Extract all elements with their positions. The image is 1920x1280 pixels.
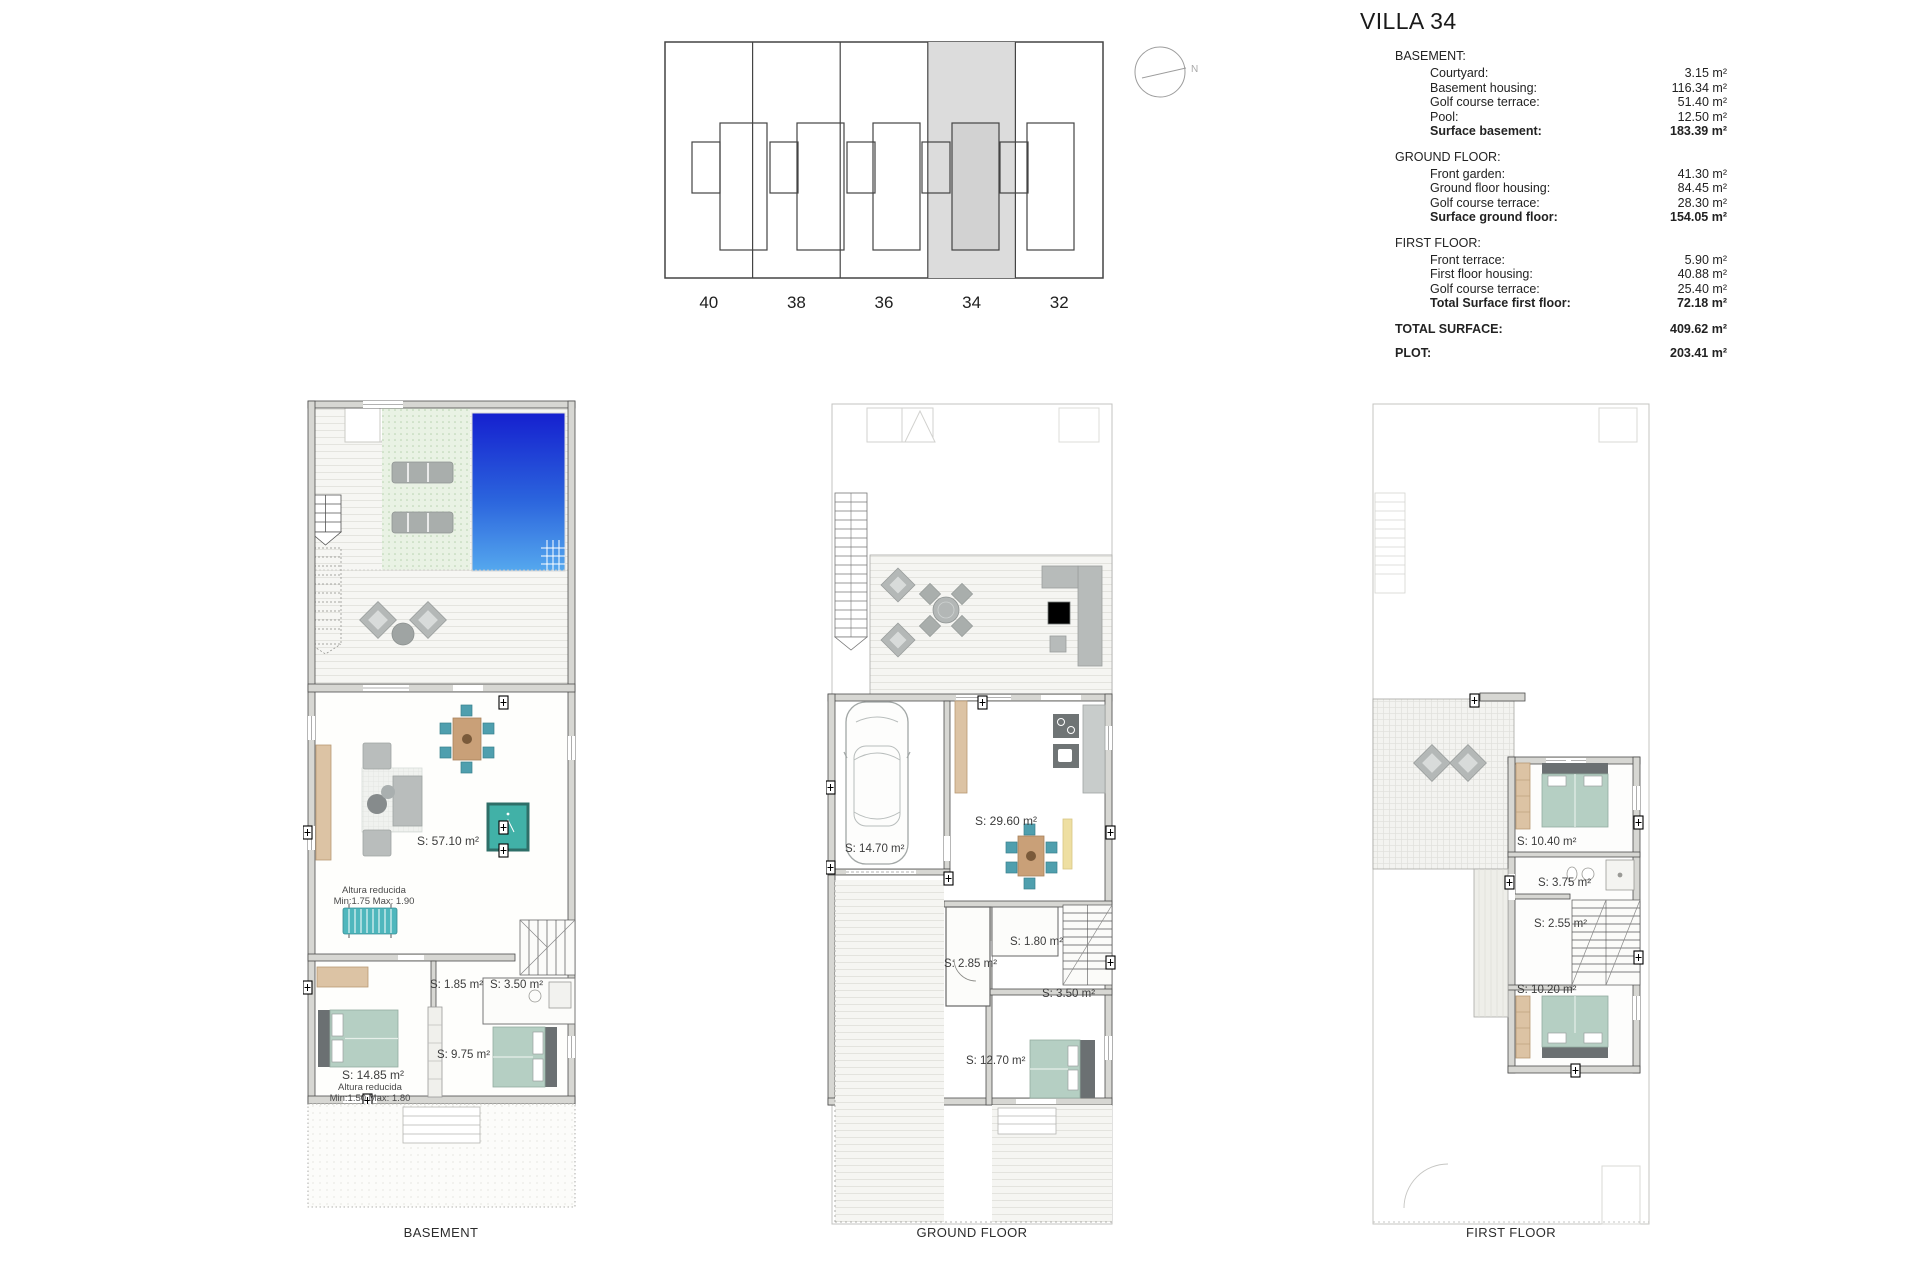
room-label-living: S: 29.60 m²	[975, 814, 1037, 828]
sun-lounger	[392, 462, 453, 483]
room-label-bath: S: 3.75 m²	[1538, 877, 1591, 889]
stairs-below-outline	[1375, 493, 1405, 593]
row-value: 28.30 m²	[1678, 196, 1727, 211]
total-label: Surface basement:	[1430, 124, 1542, 139]
unit-number: 38	[787, 293, 806, 312]
note-altura-range: Min:1.50 Max: 1.80	[330, 1093, 411, 1104]
table-summary: TOTAL SURFACE:409.62 m² PLOT:203.41 m²	[1395, 322, 1727, 361]
room-label-bedroom2: S: 10.20 m²	[1517, 984, 1577, 996]
ground-floor-plan: S: 29.60 m² S: 14.70 m² S: 1.80 m² S: 2.…	[826, 396, 1118, 1260]
table-row: Golf course terrace:51.40 m²	[1395, 95, 1727, 110]
table-section-basement: BASEMENT: Courtyard:3.15 m² Basement hou…	[1395, 49, 1727, 139]
room-label-toilet: S: 1.80 m²	[1010, 936, 1063, 948]
room-label-landing: S: 2.55 m²	[1534, 918, 1587, 930]
unit-number: 32	[1050, 293, 1069, 312]
room-label-living: S: 57.10 m²	[417, 834, 479, 848]
table-row: Front garden:41.30 m²	[1395, 167, 1727, 182]
internal-stairs	[1572, 900, 1640, 985]
total-value: 203.41 m²	[1670, 346, 1727, 361]
room-label-storage: S: 1.85 m²	[430, 979, 483, 991]
floor-caption: GROUND FLOOR	[917, 1225, 1028, 1240]
table-row: Ground floor housing:84.45 m²	[1395, 181, 1727, 196]
wall-segment	[1480, 693, 1525, 701]
row-label: Ground floor housing:	[1430, 181, 1550, 196]
total-surface-row: TOTAL SURFACE:409.62 m²	[1395, 322, 1727, 337]
unit-number: 40	[699, 293, 718, 312]
unit-numbers: 40 38 36 34 32	[699, 293, 1068, 312]
internal-stairs	[520, 920, 575, 975]
external-stairs	[835, 493, 867, 650]
room-label-bath: S: 3.50 m²	[1042, 988, 1095, 1000]
note-altura-reducida: Altura reducida	[338, 1082, 403, 1093]
basement-floor-plan: S: 57.10 m² Altura reducida Min:1.75 Max…	[303, 396, 581, 1260]
pantry-cabinet	[1063, 819, 1072, 869]
floor-caption: FIRST FLOOR	[1466, 1225, 1556, 1240]
total-value: 183.39 m²	[1670, 124, 1727, 139]
total-label: TOTAL SURFACE:	[1395, 322, 1503, 337]
table-row: Front terrace:5.90 m²	[1395, 253, 1727, 268]
site-plan: 40 38 36 34 32 N	[664, 30, 1204, 320]
row-value: 5.90 m²	[1685, 253, 1727, 268]
row-label: Front terrace:	[1430, 253, 1505, 268]
pool	[472, 413, 565, 571]
table-row: Golf course terrace:25.40 m²	[1395, 282, 1727, 297]
porch-steps	[998, 1108, 1056, 1134]
row-value: 12.50 m²	[1678, 110, 1727, 125]
car	[844, 702, 910, 864]
porch-steps	[403, 1107, 480, 1143]
vestibule	[946, 907, 990, 1006]
room-label-hall: S: 2.85 m²	[944, 958, 997, 970]
table-row: Pool:12.50 m²	[1395, 110, 1727, 125]
room-label-bedroom: S: 14.85 m²	[342, 1068, 404, 1082]
row-label: First floor housing:	[1430, 267, 1533, 282]
total-label: Total Surface first floor:	[1430, 296, 1571, 311]
table-row: Golf course terrace:28.30 m²	[1395, 196, 1727, 211]
room-label-bedroom: S: 12.70 m²	[966, 1055, 1026, 1067]
compass-north-label: N	[1191, 64, 1198, 75]
bed	[1542, 996, 1608, 1058]
balcony	[1474, 869, 1508, 1017]
room-label-bedroom1: S: 10.40 m²	[1517, 836, 1577, 848]
page-title: VILLA 34	[1360, 8, 1732, 35]
compass-icon: N	[1135, 47, 1198, 97]
bed	[318, 1010, 398, 1067]
table-total-row: Total Surface first floor:72.18 m²	[1395, 296, 1727, 311]
total-label: PLOT:	[1395, 346, 1431, 361]
row-value: 25.40 m²	[1678, 282, 1727, 297]
room-label-hall: S: 9.75 m²	[437, 1049, 490, 1061]
row-value: 51.40 m²	[1678, 95, 1727, 110]
note-altura-range: Min:1.75 Max: 1.90	[334, 896, 415, 907]
row-label: Golf course terrace:	[1430, 95, 1540, 110]
architectural-sheet: 40 38 36 34 32 N VILLA 34 BASEMENT: Cour…	[0, 0, 1920, 1280]
total-value: 72.18 m²	[1677, 296, 1727, 311]
total-value: 409.62 m²	[1670, 322, 1727, 337]
section-header: GROUND FLOOR:	[1395, 150, 1727, 164]
table-total-row: Surface basement:183.39 m²	[1395, 124, 1727, 139]
terrace-side-table	[392, 623, 414, 645]
toilet-room	[992, 907, 1058, 956]
row-value: 41.30 m²	[1678, 167, 1727, 182]
total-value: 154.05 m²	[1670, 210, 1727, 225]
row-label: Pool:	[1430, 110, 1459, 125]
note-altura-reducida: Altura reducida	[342, 885, 407, 896]
hob	[1053, 714, 1079, 738]
section-header: FIRST FLOOR:	[1395, 236, 1727, 250]
table-section-ground-floor: GROUND FLOOR: Front garden:41.30 m² Grou…	[1395, 150, 1727, 225]
kitchen-counter	[1083, 705, 1105, 793]
row-value: 116.34 m²	[1672, 81, 1727, 96]
row-label: Basement housing:	[1430, 81, 1537, 96]
sideboard	[955, 701, 967, 793]
row-value: 3.15 m²	[1685, 66, 1727, 81]
side-deck	[835, 880, 944, 1222]
row-label: Golf course terrace:	[1430, 282, 1540, 297]
row-value: 40.88 m²	[1678, 267, 1727, 282]
table-row: First floor housing:40.88 m²	[1395, 267, 1727, 282]
plot-row: PLOT:203.41 m²	[1395, 346, 1727, 361]
room-label-garage: S: 14.70 m²	[845, 843, 905, 855]
table-section-first-floor: FIRST FLOOR: Front terrace:5.90 m² First…	[1395, 236, 1727, 311]
desk	[317, 967, 368, 987]
floor-caption: BASEMENT	[404, 1225, 479, 1240]
sideboard	[316, 745, 331, 860]
wardrobe	[1516, 763, 1530, 829]
front-terrace-deck	[1373, 699, 1514, 869]
roof-outline	[1599, 408, 1637, 442]
table-total-row: Surface ground floor:154.05 m²	[1395, 210, 1727, 225]
wardrobe	[1516, 996, 1530, 1058]
section-header: BASEMENT:	[1395, 49, 1727, 63]
room-label-bath: S: 3.50 m²	[490, 979, 543, 991]
row-label: Front garden:	[1430, 167, 1505, 182]
table-row: Basement housing:116.34 m²	[1395, 81, 1727, 96]
bed	[493, 1027, 557, 1087]
sun-lounger	[392, 512, 453, 533]
total-label: Surface ground floor:	[1430, 210, 1558, 225]
site-boundary	[665, 42, 1103, 278]
golf-terrace-green	[382, 407, 470, 570]
sink	[1053, 744, 1079, 768]
table-row: Courtyard:3.15 m²	[1395, 66, 1727, 81]
unit-number: 34	[962, 293, 981, 312]
surface-table: BASEMENT: Courtyard:3.15 m² Basement hou…	[1395, 49, 1727, 361]
unit-number: 36	[875, 293, 894, 312]
entrance-garden	[308, 1104, 575, 1207]
first-floor-plan: S: 10.40 m² S: 3.75 m² S: 2.55 m² S: 10.…	[1366, 396, 1656, 1260]
row-label: Golf course terrace:	[1430, 196, 1540, 211]
internal-stairs	[1063, 905, 1112, 985]
bed	[1542, 763, 1608, 827]
foosball-table	[343, 904, 397, 938]
title-block: VILLA 34 BASEMENT: Courtyard:3.15 m² Bas…	[1360, 8, 1732, 361]
bed	[1030, 1040, 1095, 1098]
row-value: 84.45 m²	[1678, 181, 1727, 196]
row-label: Courtyard:	[1430, 66, 1488, 81]
